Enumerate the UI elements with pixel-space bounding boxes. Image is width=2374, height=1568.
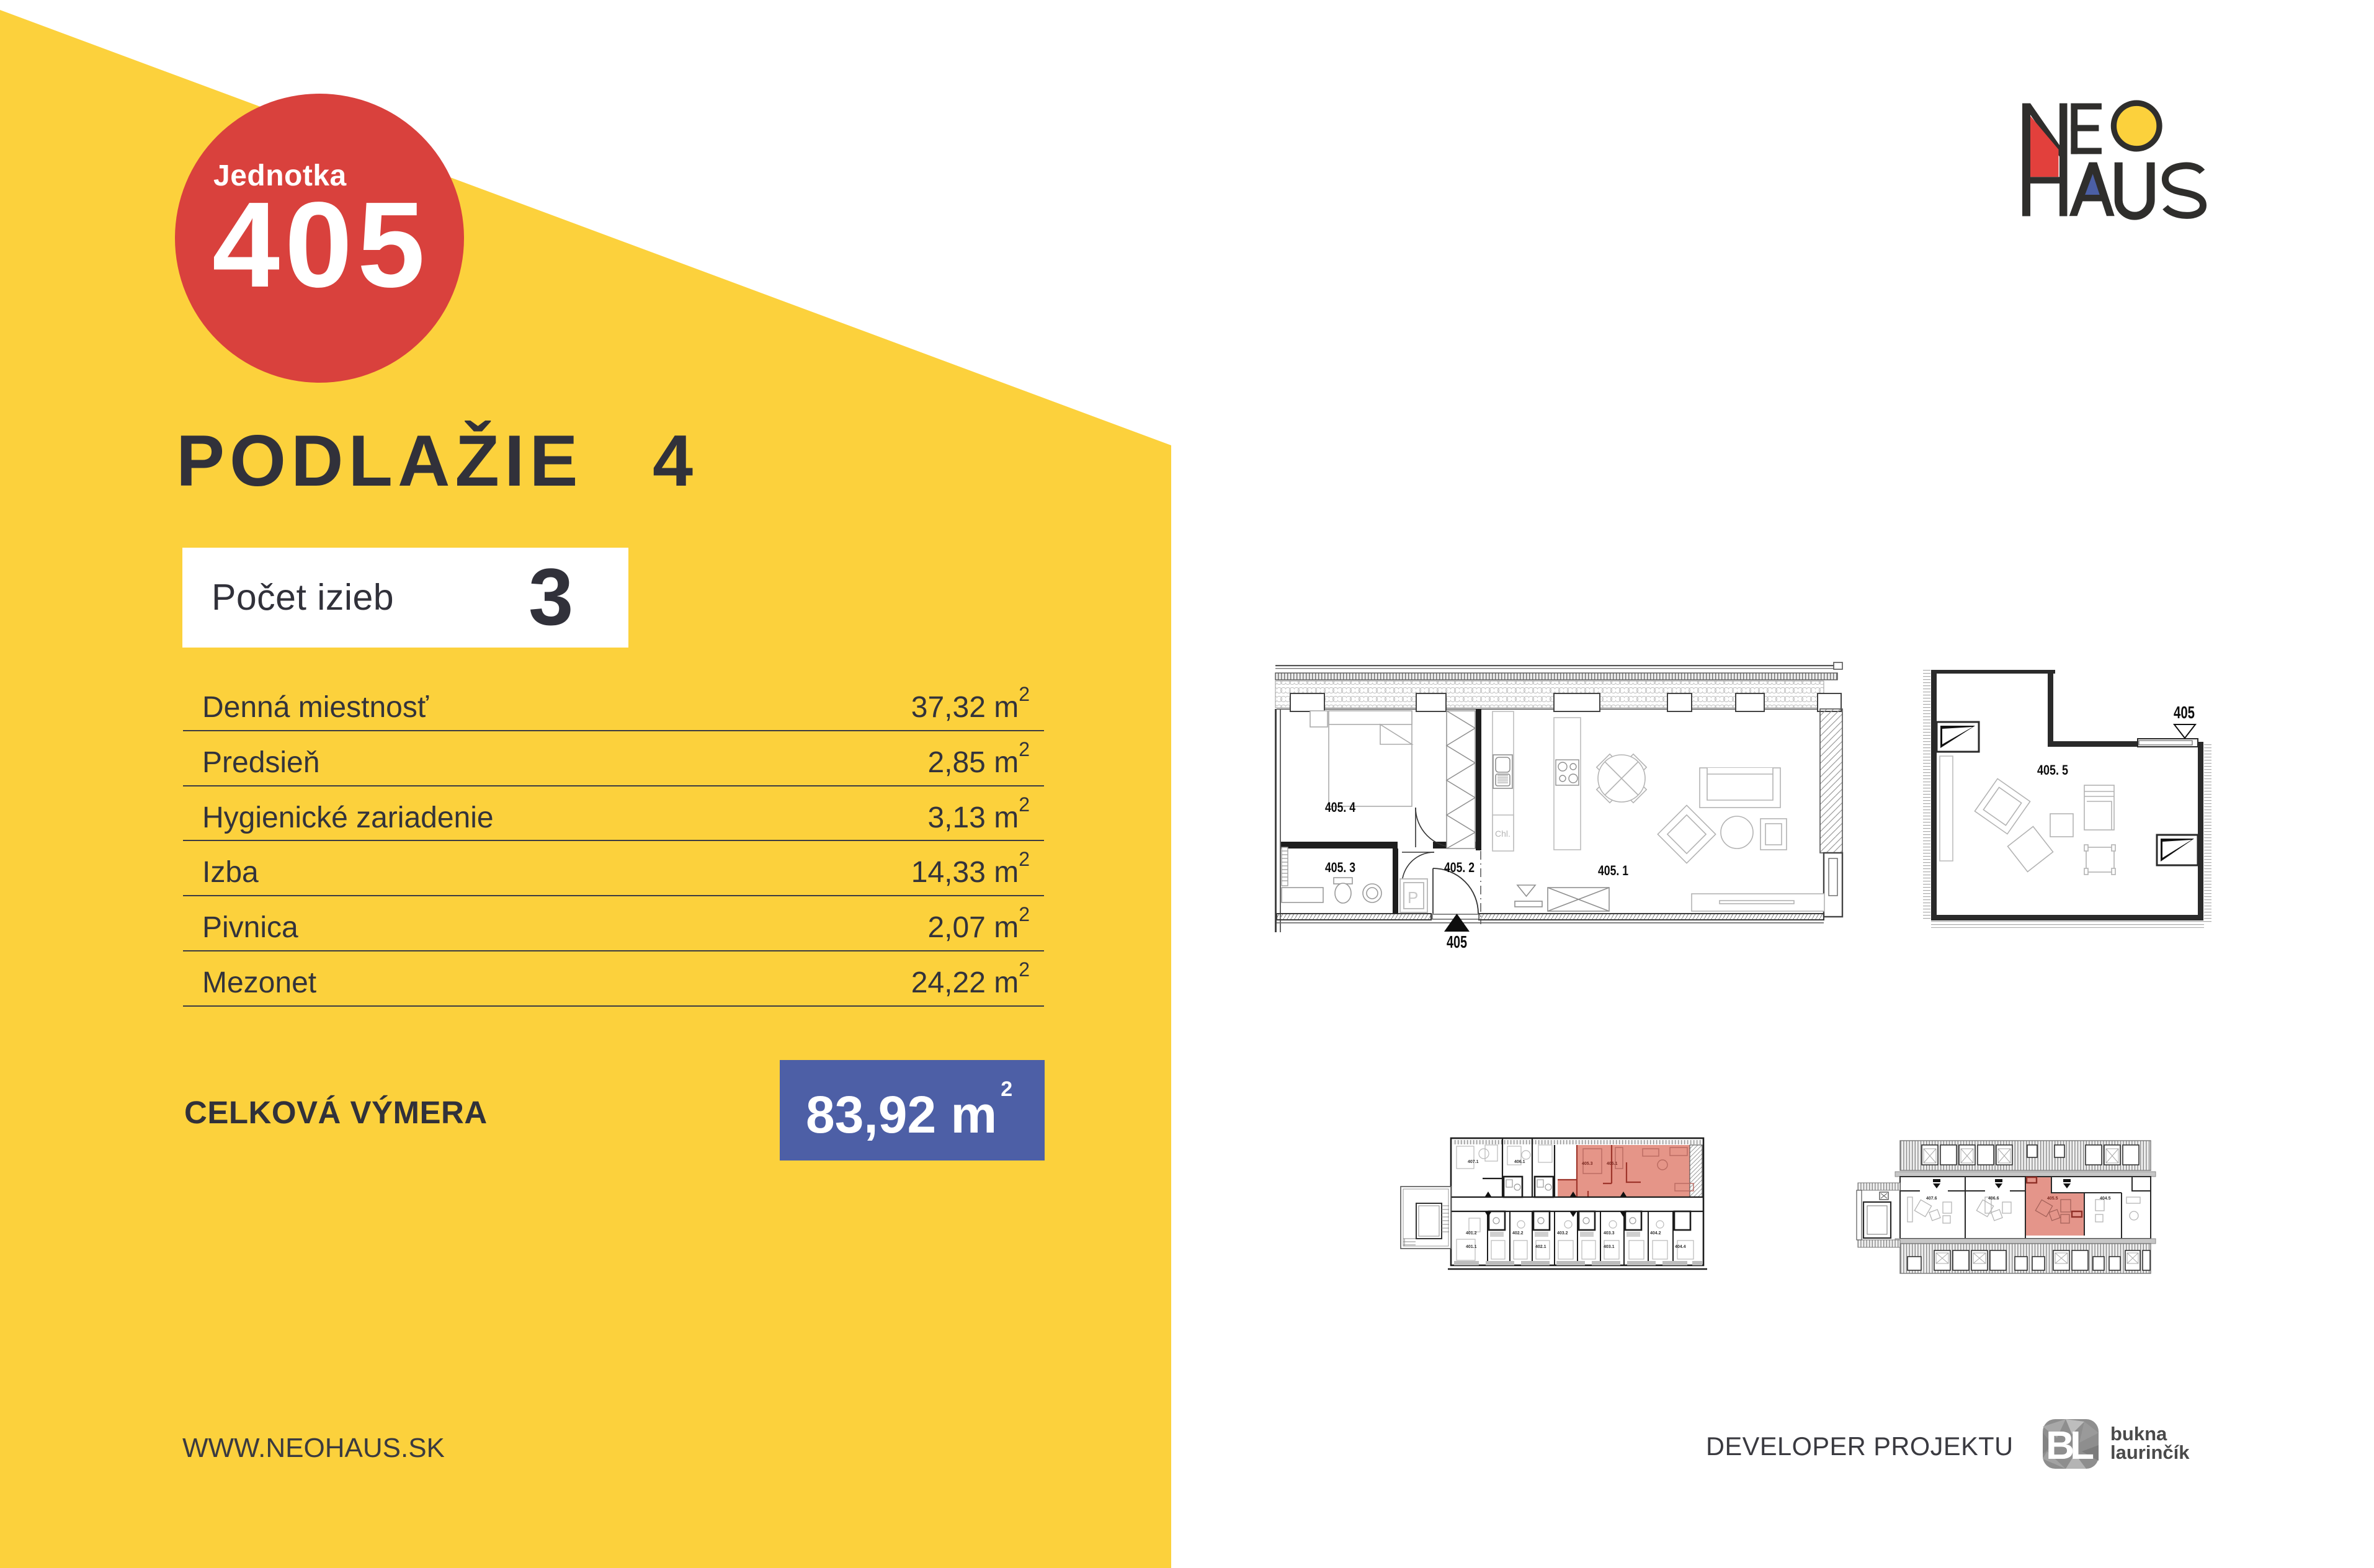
svg-text:407.6: 407.6 <box>1926 1196 1937 1201</box>
svg-text:405.1: 405.1 <box>1607 1162 1618 1166</box>
svg-text:laurinčík: laurinčík <box>2110 1441 2190 1463</box>
svg-text:401.2: 401.2 <box>1466 1231 1477 1236</box>
svg-text:405. 2: 405. 2 <box>1444 860 1475 875</box>
svg-text:405: 405 <box>2174 703 2195 722</box>
svg-text:404.4: 404.4 <box>1675 1245 1686 1249</box>
svg-text:405. 1: 405. 1 <box>1598 863 1628 878</box>
svg-text:402.1: 402.1 <box>1535 1245 1546 1249</box>
svg-text:406.1: 406.1 <box>1514 1160 1525 1164</box>
svg-text:401.1: 401.1 <box>1466 1245 1477 1249</box>
svg-text:404.2: 404.2 <box>1650 1231 1661 1236</box>
svg-text:404.5: 404.5 <box>2100 1196 2111 1201</box>
svg-text:403.2: 403.2 <box>1557 1231 1568 1236</box>
svg-text:Chl.: Chl. <box>1495 829 1511 839</box>
svg-text:403.3: 403.3 <box>1604 1231 1615 1236</box>
svg-text:405. 5: 405. 5 <box>2037 762 2068 778</box>
svg-text:407.1: 407.1 <box>1468 1160 1479 1164</box>
svg-text:405. 3: 405. 3 <box>1325 860 1355 875</box>
svg-text:405.3: 405.3 <box>1582 1162 1593 1166</box>
svg-text:403.1: 403.1 <box>1604 1245 1615 1249</box>
svg-text:402.2: 402.2 <box>1512 1231 1524 1236</box>
svg-text:P: P <box>1408 888 1418 907</box>
svg-text:405.5: 405.5 <box>2047 1196 2058 1201</box>
svg-text:405: 405 <box>1447 932 1467 951</box>
svg-text:406.6: 406.6 <box>1988 1196 1999 1201</box>
svg-text:L: L <box>2070 1423 2094 1468</box>
svg-text:405. 4: 405. 4 <box>1325 800 1356 815</box>
